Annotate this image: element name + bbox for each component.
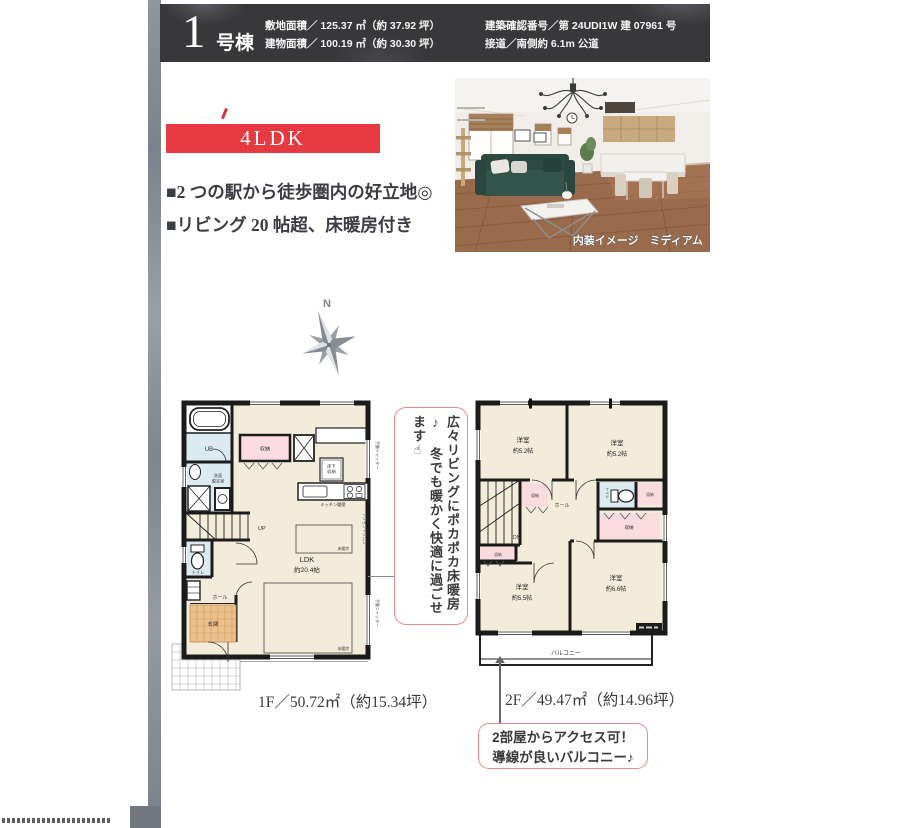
fine-print-illegible (2, 818, 110, 823)
bathtub-icon (190, 408, 229, 430)
leader-line-heating (368, 576, 395, 577)
label-closet: 収納 (494, 552, 502, 557)
label-kitchen-wall: キッチン腰壁 (320, 501, 345, 508)
label-floor-heating: 床暖房 (338, 546, 350, 551)
label-toilet: トイレ (605, 487, 610, 499)
toilet-icon (611, 490, 634, 502)
kitchen-counter (601, 154, 685, 174)
label-bedroom4: 洋室 (610, 573, 624, 582)
label-ub: UB (205, 447, 213, 453)
heating-callout: 広々リビングにポカポカ床暖房♪ 冬でも暖かく快適に過ごせます☝ (394, 407, 468, 625)
building-header: 1 号棟 敷地面積／ 125.37 ㎡（約 37.92 坪） 建物面積／ 100… (160, 4, 710, 62)
floorplan-2f: バルコニー (470, 395, 685, 690)
land-area: 敷地面積／ 125.37 ㎡（約 37.92 坪） (265, 17, 440, 35)
leader-line-balcony (499, 662, 501, 723)
label-bedroom2: 洋室 (611, 438, 625, 447)
label-dn: DN (513, 535, 521, 541)
floorplan-1f: 床下 収納 (170, 395, 385, 695)
area-info: 敷地面積／ 125.37 ㎡（約 37.92 坪） 建物面積／ 100.19 ㎡… (265, 17, 440, 53)
logo-remnant-mark (221, 108, 228, 119)
building-area: 建物面積／ 100.19 ㎡（約 30.30 坪） (265, 35, 440, 53)
label-closet: 収納 (625, 524, 634, 531)
sofa (475, 154, 575, 196)
balcony-callout-line1: 2部屋からアクセス可！ (479, 728, 647, 748)
pantry-box (294, 435, 314, 461)
unit-suffix: 号棟 (216, 28, 254, 55)
left-texture-strip (148, 0, 161, 828)
range-hood (605, 102, 635, 113)
confirmation-number: 建築確認番号／第 24UDI1W 建 07961 号 (485, 17, 676, 35)
label-hall: ホール (212, 595, 227, 601)
label-shutter: 手動シャッター (375, 599, 381, 627)
svg-text:脱衣室: 脱衣室 (212, 478, 225, 485)
layout-badge: 4LDK (166, 124, 380, 153)
photo-caption: 内装イメージ ミディアム (573, 233, 703, 247)
feature-item: ■2 つの駅から徒歩圏内の好立地◎ (166, 176, 432, 209)
balcony-callout: 2部屋からアクセス可！ 導線が良いバルコニー♪ (478, 723, 648, 769)
toilet-icon (191, 545, 204, 569)
label-bedroom3: 洋室 (516, 582, 530, 591)
washbasin-icon (190, 465, 201, 480)
label-ldk: LDK (300, 555, 315, 564)
label-toilet: トイレ (192, 570, 205, 575)
label-closet: 収納 (646, 492, 654, 497)
interior-photo: 内装イメージ ミディアム (455, 78, 710, 252)
road-access: 接道／南側約 6.1m 公道 (485, 35, 676, 53)
label-bedroom3-size: 約5.5帖 (512, 594, 532, 602)
floor1-area-label: 1F／50.72㎡（約15.34坪） (258, 690, 437, 712)
laundry-pan-icon (188, 486, 210, 511)
kitchen-counter (298, 483, 368, 500)
corner-chip (636, 623, 662, 632)
heating-callout-line2: 冬でも暖かく快適に過ごせます☝ (411, 415, 443, 615)
unit-number: 1 (182, 5, 206, 59)
legal-info: 建築確認番号／第 24UDI1W 建 07961 号 接道／南側約 6.1m 公… (485, 17, 676, 53)
balcony: バルコニー (480, 633, 652, 665)
washer-icon (215, 488, 230, 510)
svg-text:収納: 収納 (327, 468, 335, 475)
label-floor-heating: 床暖房 (338, 646, 350, 651)
flyer-page: 1 号棟 敷地面積／ 125.37 ㎡（約 37.92 坪） 建物面積／ 100… (0, 0, 906, 828)
label-hall: ホール (554, 503, 569, 509)
label-shutter: 手動シャッター (375, 441, 381, 469)
picture-frame (515, 130, 530, 141)
label-ldk-size: 約20.4帖 (294, 565, 320, 574)
label-bedroom1: 洋室 (517, 435, 531, 444)
left-strip-foot (130, 806, 161, 828)
compass-rose: N (293, 293, 365, 393)
underfloor-storage: 床下 収納 (320, 458, 343, 481)
compass-north-label: N (323, 298, 331, 310)
label-up: UP (258, 526, 266, 532)
label-bedroom1-size: 約5.2帖 (513, 447, 533, 455)
label-accent-cloth: アクセントクロス (362, 513, 368, 545)
shoe-cabinet-icon (187, 581, 200, 600)
label-closet: 収納 (260, 445, 270, 453)
cupboard (316, 428, 366, 443)
feature-list: ■2 つの駅から徒歩圏内の好立地◎ ■リビング 20 帖超、床暖房付き (166, 176, 432, 242)
label-entrance: 玄関 (207, 620, 219, 628)
floor2-area-label: 2F／49.47㎡（約14.96坪） (505, 688, 684, 710)
leader-arrow-icon (495, 656, 505, 663)
feature-item: ■リビング 20 帖超、床暖房付き (166, 209, 432, 242)
label-closet: 収納 (531, 492, 539, 498)
label-bedroom4-size: 約6.6帖 (606, 585, 626, 593)
balcony-callout-line2: 導線が良いバルコニー♪ (479, 748, 647, 768)
label-balcony: バルコニー (551, 650, 581, 657)
label-bedroom2-size: 約5.2帖 (607, 450, 627, 458)
picture-frame (534, 133, 546, 142)
